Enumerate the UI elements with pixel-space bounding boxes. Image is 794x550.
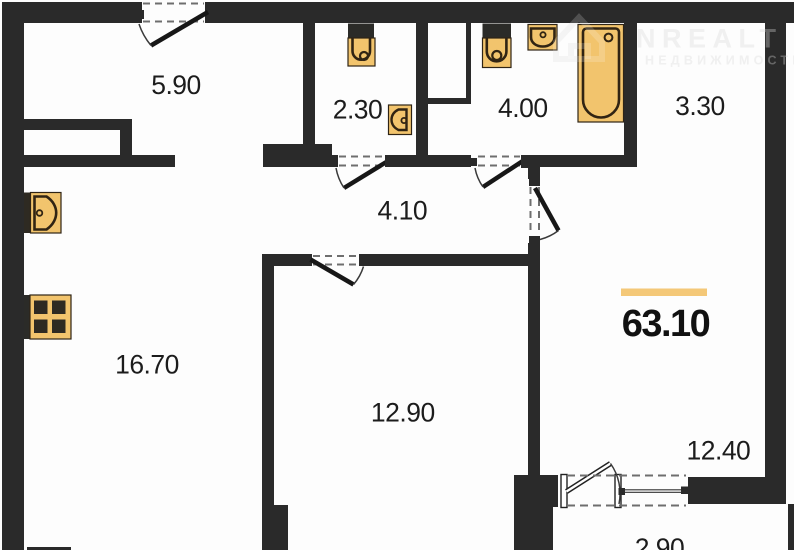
svg-text:4.10: 4.10	[378, 196, 428, 226]
svg-text:5.90: 5.90	[151, 70, 201, 100]
svg-text:12.90: 12.90	[371, 397, 435, 427]
svg-text:12.40: 12.40	[686, 435, 750, 465]
svg-text:NREALT: NREALT	[636, 24, 783, 54]
svg-text:4.00: 4.00	[498, 93, 548, 123]
svg-text:63.10: 63.10	[622, 303, 710, 345]
svg-text:2.30: 2.30	[333, 95, 383, 125]
svg-text:16.70: 16.70	[115, 350, 179, 380]
svg-text:3.30: 3.30	[675, 91, 725, 121]
svg-text:2.90: 2.90	[635, 533, 685, 550]
svg-text:НЕДВИЖИМОСТЬ: НЕДВИЖИМОСТЬ	[645, 54, 794, 68]
